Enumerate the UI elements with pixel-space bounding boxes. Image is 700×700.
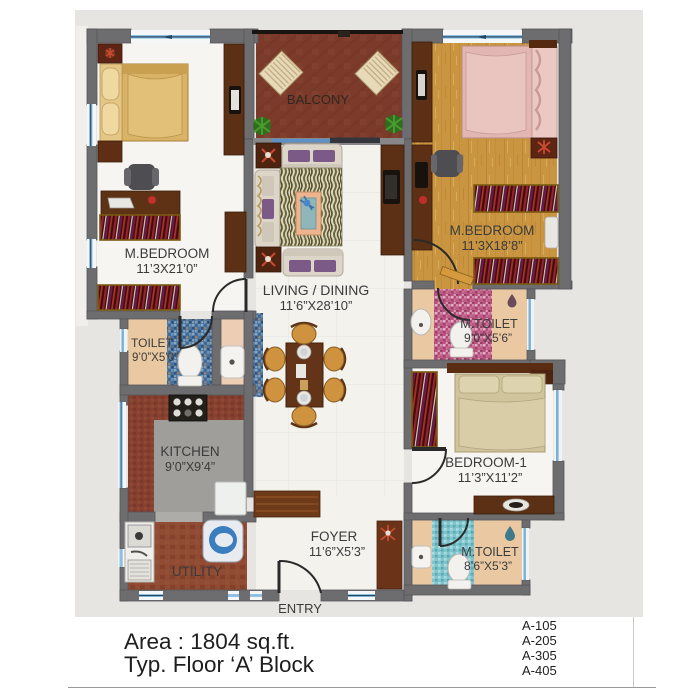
svg-text:Area : 1804 sq.ft.: Area : 1804 sq.ft. (124, 629, 295, 654)
svg-text:UTILITY: UTILITY (172, 564, 222, 579)
svg-text:8’6”X5’3”: 8’6”X5’3” (464, 559, 512, 573)
svg-text:KITCHEN: KITCHEN (160, 444, 219, 459)
svg-text:11’3”X11’2”: 11’3”X11’2” (458, 470, 523, 485)
svg-text:M.TOILET: M.TOILET (460, 317, 518, 331)
svg-text:9’0”X5’0”: 9’0”X5’0” (132, 352, 178, 364)
svg-text:TOILET: TOILET (131, 336, 173, 350)
svg-text:BALCONY: BALCONY (287, 92, 349, 107)
svg-text:11’6”X28’10”: 11’6”X28’10” (280, 298, 353, 313)
svg-text:A-105: A-105 (522, 618, 557, 633)
svg-text:LIVING / DINING: LIVING / DINING (263, 282, 370, 298)
svg-text:M.TOILET: M.TOILET (461, 545, 519, 559)
svg-text:Typ. Floor ‘A’ Block: Typ. Floor ‘A’ Block (124, 652, 315, 677)
svg-text:BEDROOM-1: BEDROOM-1 (445, 455, 527, 470)
svg-text:11’3X18’8”: 11’3X18’8” (461, 238, 522, 253)
svg-text:11’6”X5’3”: 11’6”X5’3” (309, 545, 365, 559)
svg-text:FOYER: FOYER (311, 529, 358, 544)
svg-text:A-305: A-305 (522, 648, 557, 663)
svg-text:ENTRY: ENTRY (278, 601, 322, 616)
svg-text:9’0”X9’4”: 9’0”X9’4” (165, 460, 215, 474)
svg-text:M.BEDROOM: M.BEDROOM (450, 223, 535, 238)
svg-text:M.BEDROOM: M.BEDROOM (125, 246, 210, 261)
svg-text:11’3X21’0”: 11’3X21’0” (136, 261, 197, 276)
svg-text:9’0”X5’6”: 9’0”X5’6” (464, 331, 512, 345)
svg-text:A-405: A-405 (522, 663, 557, 678)
svg-text:A-205: A-205 (522, 633, 557, 648)
